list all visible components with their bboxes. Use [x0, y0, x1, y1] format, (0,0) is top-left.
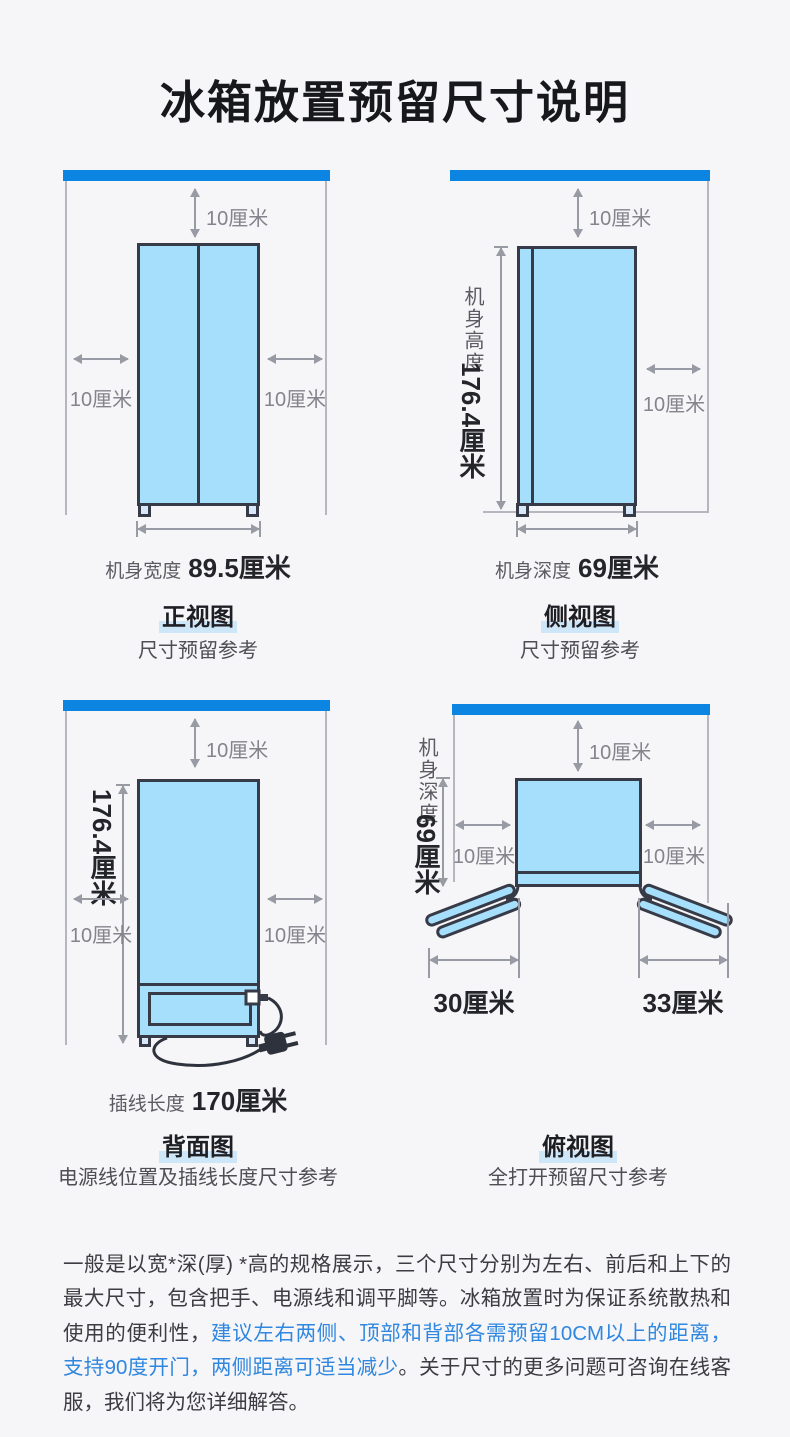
ceiling-bar — [452, 704, 710, 715]
left-clearance-label: 10厘米 — [66, 383, 136, 412]
side-view-caption: 侧视图 — [445, 597, 715, 632]
left-door-value: 30厘米 — [426, 983, 522, 1020]
left-clearance-arrow — [74, 358, 128, 360]
right-clearance-label: 10厘米 — [260, 383, 330, 412]
depth-label: 机身深度 — [412, 737, 441, 825]
right-clearance-arrow — [268, 898, 322, 900]
height-label: 机身高度 — [458, 286, 487, 374]
right-door-value: 33厘米 — [635, 983, 731, 1020]
dimension-note-paragraph: 一般是以宽*深(厚) *高的规格展示，三个尺寸分别为左右、前后和上下的最大尺寸，… — [63, 1248, 731, 1421]
cord-loop — [260, 998, 281, 1035]
fridge-top-outline — [515, 778, 642, 887]
left-door-measure-arrow — [430, 959, 518, 961]
depth-value: 69厘米 — [408, 814, 445, 895]
width-measure-arrow — [138, 528, 259, 530]
measure-tick — [638, 898, 640, 978]
width-value: 89.5厘米 — [188, 553, 291, 583]
cord-length-label-row: 插线长度170厘米 — [63, 1081, 333, 1118]
back-view-subtitle: 电源线位置及插线长度尺寸参考 — [40, 1161, 356, 1190]
depth-measure-arrow — [518, 528, 636, 530]
ceiling-bar — [63, 170, 330, 181]
top-clearance-arrow — [194, 719, 196, 767]
depth-value: 69厘米 — [578, 553, 659, 583]
top-clearance-label: 10厘米 — [206, 202, 268, 231]
top-clearance-arrow — [577, 721, 579, 771]
front-edge-line — [518, 871, 639, 874]
left-wall-line — [65, 711, 67, 1045]
top-view-caption: 俯视图 — [443, 1127, 713, 1162]
side-view-subtitle: 尺寸预留参考 — [445, 634, 715, 663]
top-clearance-label: 10厘米 — [589, 202, 651, 231]
depth-label: 机身深度 — [495, 561, 571, 582]
plug-icon — [256, 1028, 299, 1057]
depth-measure-label: 机身深度69厘米 — [442, 548, 712, 585]
cord-connector — [246, 991, 259, 1004]
right-wall-line — [707, 715, 709, 903]
infographic-page: 冰箱放置预留尺寸说明 10厘米 10厘米 10厘米 机身宽度89.5厘米 正视图… — [0, 0, 790, 1437]
page-title: 冰箱放置预留尺寸说明 — [0, 66, 790, 131]
height-measure-arrow — [500, 248, 502, 509]
door-split-line — [197, 246, 200, 503]
ceiling-bar — [63, 700, 330, 711]
front-view-caption: 正视图 — [63, 597, 333, 632]
top-clearance-label: 10厘米 — [589, 736, 651, 765]
measure-tick — [518, 898, 520, 978]
fridge-side-outline — [517, 246, 637, 506]
cord-value: 170厘米 — [192, 1086, 287, 1116]
power-cord-graphic — [133, 984, 313, 1076]
right-clearance-label: 10厘米 — [639, 840, 709, 869]
right-clearance-arrow — [268, 358, 322, 360]
measure-tick — [727, 903, 729, 978]
right-wall-line — [325, 711, 327, 1045]
height-value: 176.4厘米 — [84, 789, 121, 906]
left-clearance-label: 10厘米 — [449, 840, 519, 869]
right-wall-line — [707, 181, 709, 513]
back-view-caption: 背面图 — [60, 1127, 336, 1162]
top-view-subtitle: 全打开预留尺寸参考 — [443, 1161, 713, 1190]
height-measure-arrow — [122, 786, 124, 1043]
cord-curve — [154, 1038, 264, 1065]
fridge-front-outline — [137, 243, 260, 506]
front-view-subtitle: 尺寸预留参考 — [63, 634, 333, 663]
right-door-measure-arrow — [640, 959, 727, 961]
left-clearance-label: 10厘米 — [66, 919, 136, 948]
right-clearance-label: 10厘米 — [639, 388, 709, 417]
width-label: 机身宽度 — [105, 561, 181, 582]
top-clearance-arrow — [577, 189, 579, 237]
top-clearance-arrow — [194, 189, 196, 237]
left-clearance-arrow — [456, 824, 510, 826]
right-open-door — [635, 882, 735, 943]
top-clearance-label: 10厘米 — [206, 734, 268, 763]
left-wall-line — [65, 181, 67, 515]
door-edge-line — [531, 249, 534, 503]
cord-label: 插线长度 — [109, 1094, 185, 1115]
left-clearance-arrow — [74, 898, 128, 900]
width-measure-label: 机身宽度89.5厘米 — [63, 548, 333, 585]
height-value: 176.4厘米 — [453, 362, 490, 479]
door-hinges-graphic — [506, 885, 652, 903]
right-clearance-label: 10厘米 — [260, 919, 330, 948]
ceiling-bar — [450, 170, 710, 181]
right-clearance-arrow — [646, 824, 700, 826]
right-wall-line — [325, 181, 327, 515]
cord-connector-nub — [260, 994, 268, 1001]
right-clearance-arrow — [647, 368, 700, 370]
